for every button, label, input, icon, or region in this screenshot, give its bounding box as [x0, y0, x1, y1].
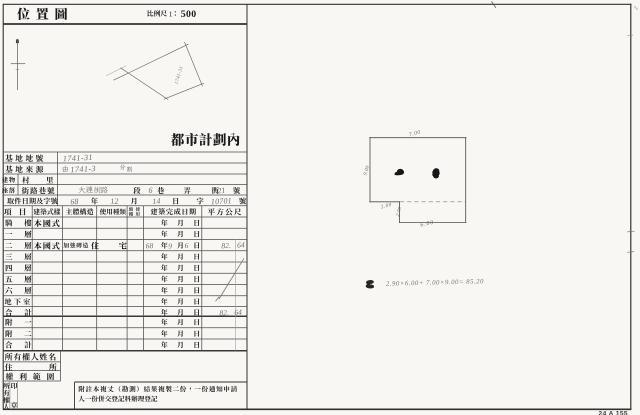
svg-text:1741-31: 1741-31: [63, 153, 94, 164]
svg-text:14: 14: [152, 196, 160, 205]
svg-text:82.: 82.: [219, 308, 229, 318]
svg-text:82.: 82.: [221, 241, 231, 251]
svg-text:6: 6: [185, 241, 189, 250]
svg-text:6: 6: [149, 186, 153, 195]
svg-text:1741-3: 1741-3: [70, 164, 96, 174]
svg-text:68: 68: [145, 241, 153, 250]
svg-text:10701: 10701: [211, 196, 232, 206]
svg-text:21: 21: [217, 186, 226, 196]
svg-text:1: 1: [169, 9, 173, 18]
svg-text:68: 68: [70, 197, 78, 206]
svg-text:64: 64: [237, 240, 245, 250]
svg-text:500: 500: [181, 9, 197, 20]
svg-text:12: 12: [110, 196, 118, 205]
svg-text:24 A 155: 24 A 155: [599, 411, 628, 415]
svg-text:64: 64: [234, 307, 242, 317]
svg-text:9: 9: [168, 241, 172, 250]
